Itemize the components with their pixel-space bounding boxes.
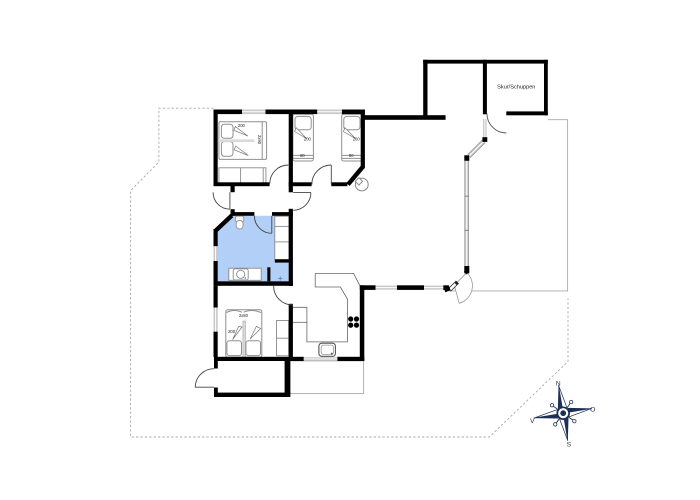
svg-text:80: 80 <box>300 153 305 158</box>
svg-text:200: 200 <box>304 136 312 141</box>
svg-text:N: N <box>556 380 561 387</box>
svg-text:Skur/Schuppen: Skur/Schuppen <box>497 85 535 91</box>
svg-text:200: 200 <box>238 123 246 128</box>
svg-text:200: 200 <box>228 329 236 334</box>
svg-text:O: O <box>590 406 595 413</box>
svg-text:200: 200 <box>353 136 361 141</box>
svg-text:2x80: 2x80 <box>239 313 249 318</box>
svg-text:V: V <box>530 418 535 425</box>
svg-text:80: 80 <box>349 153 354 158</box>
svg-text:2x90: 2x90 <box>257 135 262 145</box>
svg-text:S: S <box>567 442 572 449</box>
